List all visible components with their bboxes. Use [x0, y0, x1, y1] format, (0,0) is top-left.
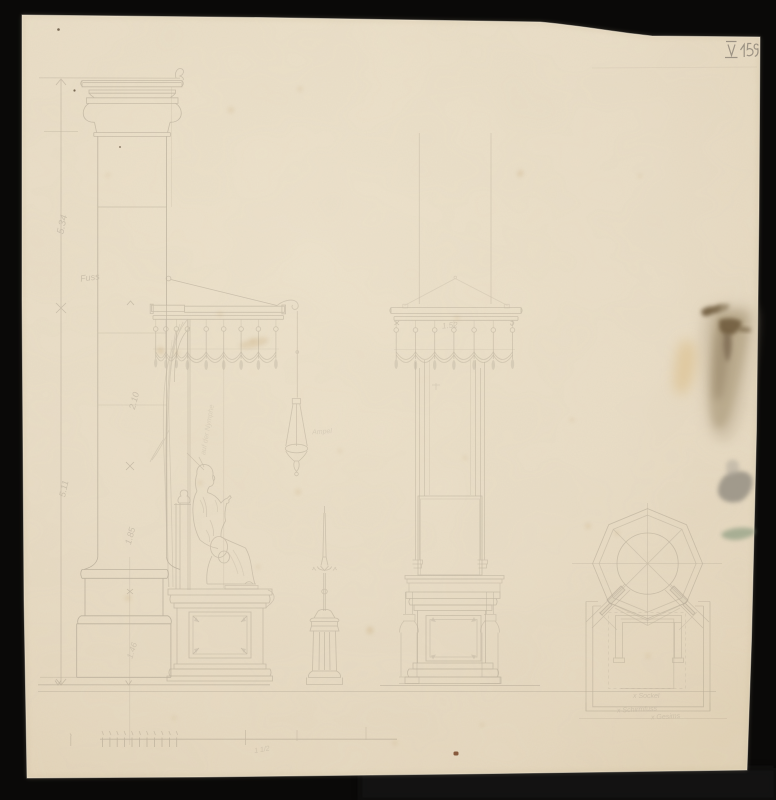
svg-text:x Sockel: x Sockel — [632, 693, 660, 700]
svg-text:Ampel: Ampel — [311, 428, 333, 436]
